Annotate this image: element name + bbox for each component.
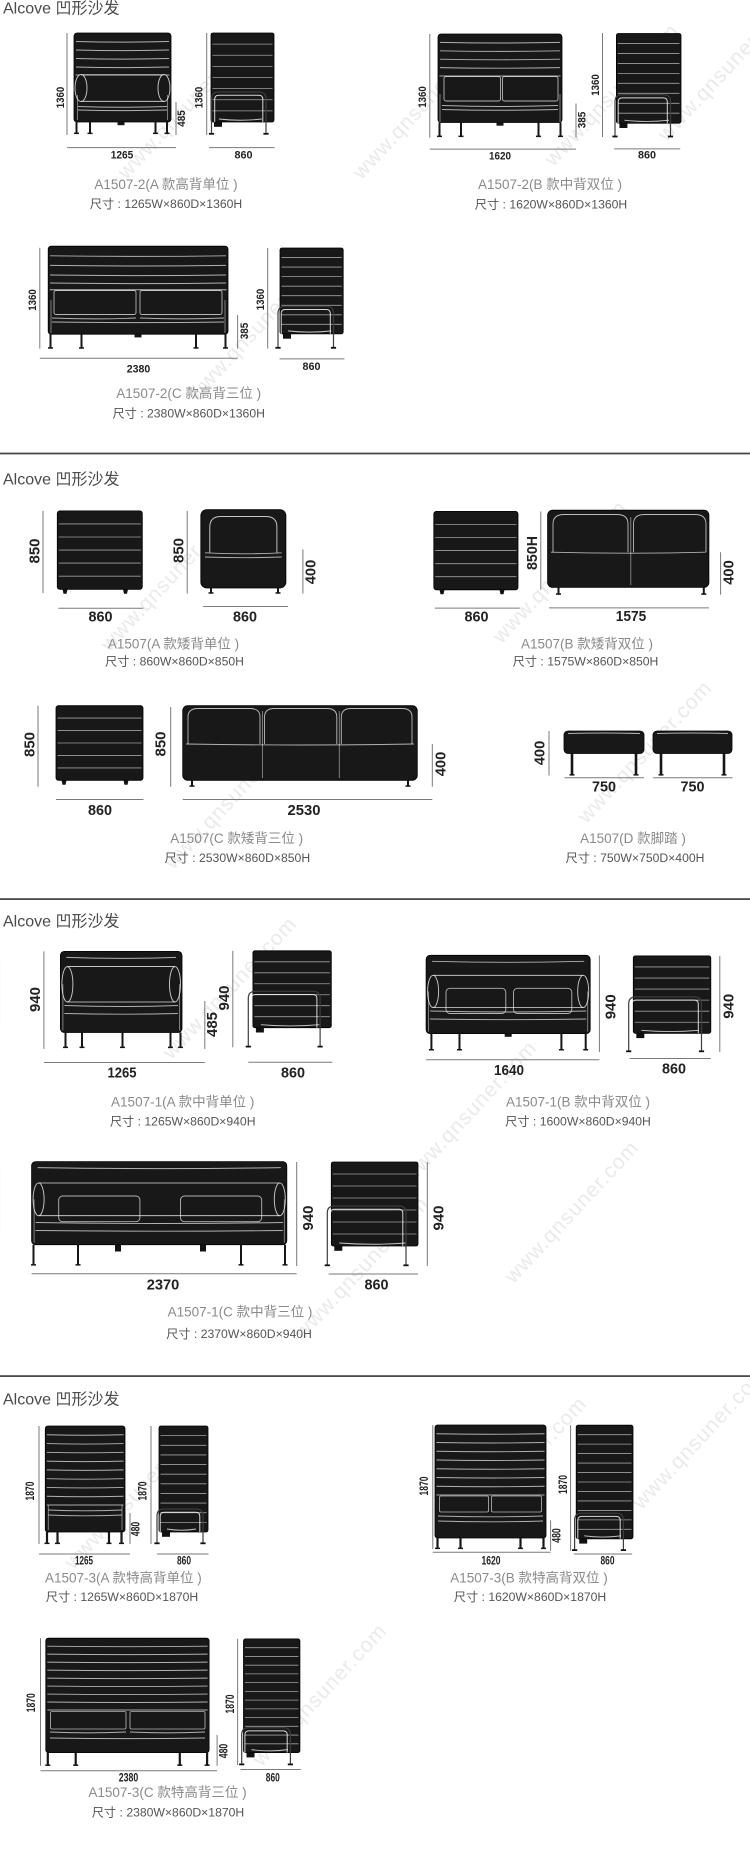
svg-text:尺寸 : 2380W×860D×1360H: 尺寸 : 2380W×860D×1360H: [112, 406, 264, 420]
svg-text:860: 860: [601, 1556, 615, 1568]
svg-text:A1507(B 款矮背双位 ): A1507(B 款矮背双位 ): [521, 637, 653, 652]
svg-text:485: 485: [204, 1012, 221, 1037]
svg-text:尺寸 : 1575W×860D×850H: 尺寸 : 1575W×860D×850H: [513, 655, 659, 669]
svg-text:400: 400: [721, 560, 738, 585]
svg-text:尺寸 : 2380W×860D×1870H: 尺寸 : 2380W×860D×1870H: [92, 1806, 244, 1820]
svg-text:A1507-2(B 款中背双位 ): A1507-2(B 款中背双位 ): [478, 177, 622, 192]
svg-text:A1507-1(C 款中背三位 ): A1507-1(C 款中背三位 ): [168, 1305, 313, 1320]
svg-text:1360: 1360: [27, 289, 39, 311]
svg-text:A1507-3(B 款特高背双位 ): A1507-3(B 款特高背双位 ): [450, 1569, 608, 1585]
svg-text:尺寸 : 1265W×860D×1870H: 尺寸 : 1265W×860D×1870H: [46, 1590, 198, 1604]
svg-text:A1507(D 款脚踏 ): A1507(D 款脚踏 ): [580, 831, 686, 846]
svg-text:尺寸 : 2530W×860D×850H: 尺寸 : 2530W×860D×850H: [164, 851, 310, 865]
svg-text:尺寸 : 2370W×860D×940H: 尺寸 : 2370W×860D×940H: [166, 1327, 312, 1341]
svg-text:尺寸 : 1600W×860D×940H: 尺寸 : 1600W×860D×940H: [505, 1114, 651, 1128]
svg-text:尺寸 : 1620W×860D×1360H: 尺寸 : 1620W×860D×1360H: [475, 197, 627, 211]
svg-text:1870: 1870: [25, 1482, 37, 1501]
svg-text:1870: 1870: [138, 1482, 150, 1501]
svg-text:850: 850: [27, 539, 44, 564]
svg-text:860: 860: [177, 1556, 191, 1568]
svg-text:400: 400: [303, 560, 320, 585]
svg-text:750: 750: [681, 778, 705, 795]
svg-text:尺寸 : 860W×860D×850H: 尺寸 : 860W×860D×850H: [105, 655, 244, 669]
svg-text:860: 860: [266, 1773, 280, 1785]
svg-text:1265: 1265: [108, 1064, 137, 1081]
svg-text:Alcove 凹形沙发: Alcove 凹形沙发: [3, 913, 119, 931]
svg-text:400: 400: [532, 741, 549, 766]
svg-text:1575: 1575: [616, 608, 647, 625]
svg-text:485: 485: [176, 110, 188, 127]
svg-text:1640: 1640: [494, 1062, 524, 1079]
svg-text:A1507-3(C 款特高背三位 ): A1507-3(C 款特高背三位 ): [88, 1784, 246, 1800]
svg-text:850: 850: [22, 732, 39, 757]
svg-text:750: 750: [592, 778, 616, 795]
svg-text:尺寸 : 1620W×860D×1870H: 尺寸 : 1620W×860D×1870H: [454, 1590, 606, 1604]
svg-text:A1507-2(A 款高背单位 ): A1507-2(A 款高背单位 ): [94, 176, 237, 192]
svg-text:1360: 1360: [417, 86, 429, 108]
svg-text:860: 860: [233, 609, 257, 626]
svg-text:860: 860: [465, 609, 489, 626]
svg-text:Alcove 凹形沙发: Alcove 凹形沙发: [3, 0, 119, 18]
svg-text:2380: 2380: [119, 1773, 139, 1785]
svg-text:A1507-2(C 款高背三位 ): A1507-2(C 款高背三位 ): [116, 385, 261, 401]
svg-text:850H: 850H: [524, 536, 541, 570]
svg-text:A1507-1(A 款中背单位 ): A1507-1(A 款中背单位 ): [111, 1094, 254, 1109]
svg-text:940: 940: [431, 1206, 448, 1231]
svg-text:940: 940: [27, 987, 44, 1012]
svg-text:1360: 1360: [590, 74, 602, 96]
svg-text:1870: 1870: [558, 1475, 570, 1494]
svg-text:860: 860: [662, 1061, 686, 1078]
svg-text:940: 940: [603, 994, 620, 1019]
svg-text:860: 860: [281, 1064, 305, 1081]
svg-text:Alcove 凹形沙发: Alcove 凹形沙发: [3, 1391, 119, 1409]
svg-text:1360: 1360: [194, 87, 206, 109]
svg-text:860: 860: [89, 609, 113, 626]
svg-text:850: 850: [171, 538, 188, 563]
svg-text:480: 480: [131, 1522, 143, 1537]
svg-text:1620: 1620: [482, 1556, 501, 1568]
svg-text:A1507-1(B 款中背双位 ): A1507-1(B 款中背双位 ): [506, 1094, 650, 1109]
svg-text:480: 480: [552, 1528, 564, 1543]
svg-text:385: 385: [239, 323, 251, 340]
svg-text:尺寸 : 1265W×860D×940H: 尺寸 : 1265W×860D×940H: [110, 1114, 256, 1128]
svg-text:940: 940: [300, 1206, 317, 1231]
svg-text:400: 400: [433, 752, 450, 777]
svg-text:1870: 1870: [419, 1477, 431, 1496]
svg-text:A1507(A 款矮背单位 ): A1507(A 款矮背单位 ): [108, 637, 239, 652]
svg-text:尺寸 : 750W×750D×400H: 尺寸 : 750W×750D×400H: [566, 851, 705, 865]
svg-text:850: 850: [153, 732, 170, 757]
svg-text:Alcove 凹形沙发: Alcove 凹形沙发: [3, 471, 119, 489]
svg-text:940: 940: [721, 994, 738, 1019]
svg-text:2380: 2380: [127, 364, 151, 376]
svg-text:385: 385: [577, 112, 589, 129]
svg-text:1265: 1265: [111, 150, 134, 162]
svg-text:1620: 1620: [489, 151, 511, 163]
svg-text:2530: 2530: [288, 802, 321, 819]
svg-text:860: 860: [365, 1276, 389, 1293]
svg-text:1265: 1265: [75, 1556, 93, 1568]
svg-text:1360: 1360: [55, 87, 67, 109]
svg-text:A1507-3(A 款特高背单位 ): A1507-3(A 款特高背单位 ): [45, 1569, 202, 1585]
svg-text:尺寸 : 1265W×860D×1360H: 尺寸 : 1265W×860D×1360H: [90, 197, 242, 211]
svg-text:A1507(C 款矮背三位 ): A1507(C 款矮背三位 ): [170, 831, 303, 846]
svg-text:860: 860: [235, 150, 253, 162]
svg-text:940: 940: [216, 986, 233, 1011]
svg-text:1870: 1870: [26, 1693, 38, 1712]
svg-text:860: 860: [88, 802, 112, 819]
svg-text:2370: 2370: [147, 1276, 180, 1293]
svg-text:480: 480: [219, 1744, 231, 1759]
svg-text:1360: 1360: [255, 289, 267, 311]
svg-text:860: 860: [303, 361, 321, 373]
svg-text:1870: 1870: [225, 1695, 237, 1714]
svg-text:860: 860: [638, 150, 656, 162]
